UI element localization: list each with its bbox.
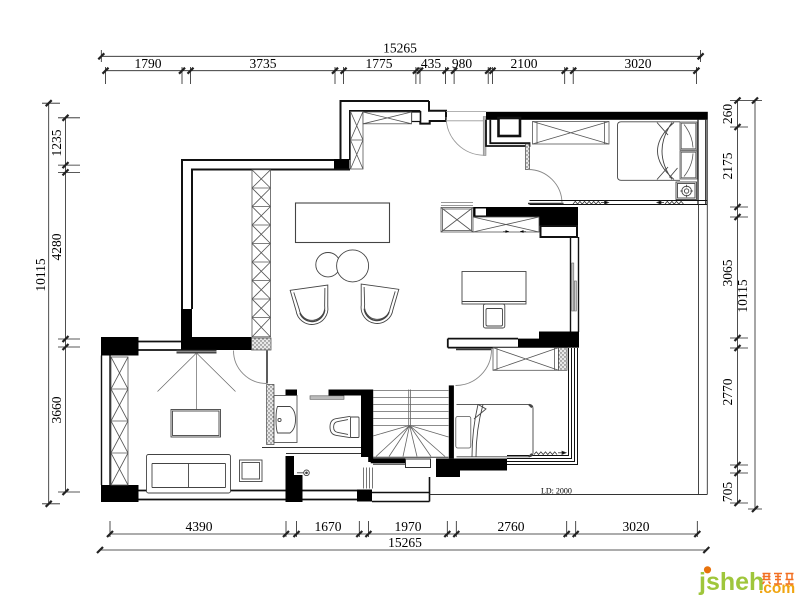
svg-text:3735: 3735 <box>250 56 277 71</box>
svg-text:3660: 3660 <box>49 396 64 423</box>
svg-text:260: 260 <box>720 104 735 125</box>
svg-text:4280: 4280 <box>49 233 64 260</box>
svg-text:980: 980 <box>452 56 473 71</box>
svg-text:2175: 2175 <box>720 152 735 179</box>
svg-text:2760: 2760 <box>498 519 525 534</box>
svg-text:705: 705 <box>720 482 735 503</box>
svg-text:1790: 1790 <box>135 56 162 71</box>
svg-text:435: 435 <box>421 56 442 71</box>
svg-text:15265: 15265 <box>388 535 422 550</box>
svg-text:15265: 15265 <box>383 41 417 56</box>
svg-text:1235: 1235 <box>49 129 64 156</box>
svg-text:1670: 1670 <box>315 519 342 534</box>
svg-text:3020: 3020 <box>625 56 652 71</box>
svg-text:3020: 3020 <box>623 519 650 534</box>
svg-text:LD: 2000: LD: 2000 <box>541 487 572 496</box>
svg-text:4390: 4390 <box>186 519 213 534</box>
svg-text:10115: 10115 <box>33 258 48 291</box>
svg-text:1775: 1775 <box>366 56 393 71</box>
svg-text:3065: 3065 <box>720 259 735 286</box>
svg-text:2100: 2100 <box>511 56 538 71</box>
svg-text:2770: 2770 <box>720 378 735 405</box>
svg-text:1970: 1970 <box>395 519 422 534</box>
